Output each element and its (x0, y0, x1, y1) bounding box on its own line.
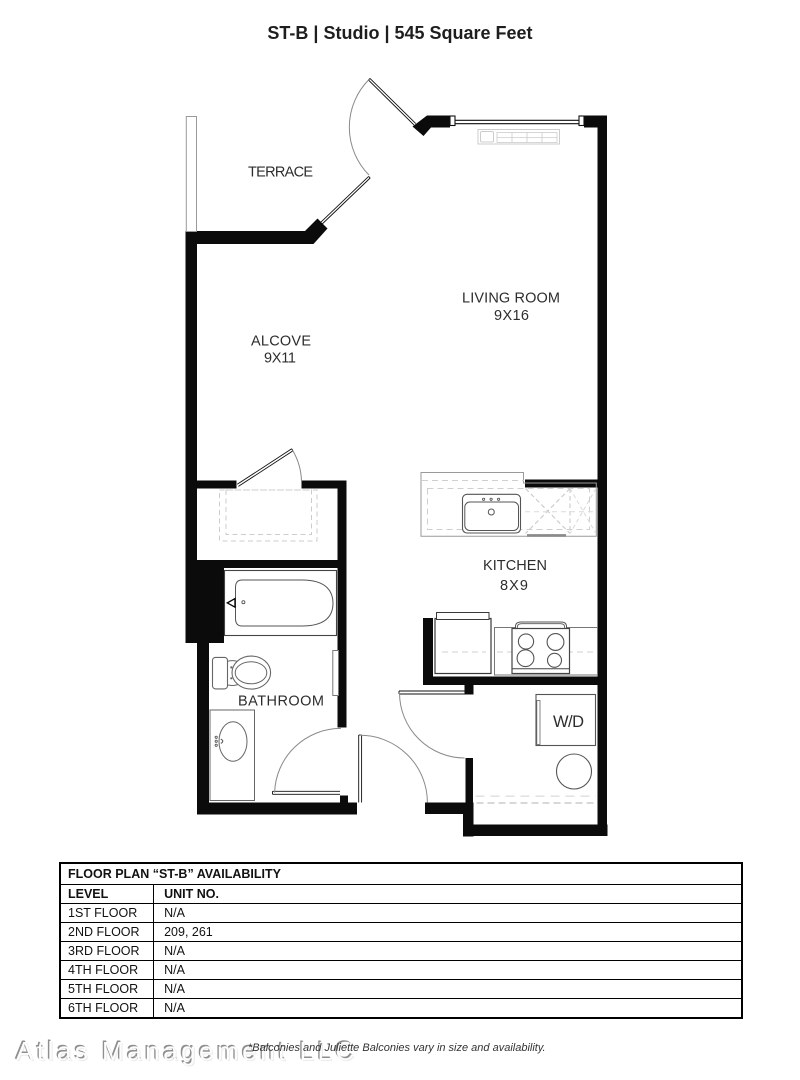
svg-text:BATHROOM: BATHROOM (238, 694, 324, 710)
svg-text:ALCOVE: ALCOVE (251, 334, 311, 350)
svg-text:W/D: W/D (553, 713, 584, 731)
svg-text:LIVING ROOM: LIVING ROOM (462, 291, 560, 307)
svg-text:KITCHEN: KITCHEN (483, 558, 547, 574)
svg-text:9X11: 9X11 (264, 351, 296, 367)
svg-text:TERRACE: TERRACE (248, 165, 313, 181)
svg-text:9X16: 9X16 (494, 308, 529, 324)
svg-text:8X9: 8X9 (500, 578, 528, 594)
